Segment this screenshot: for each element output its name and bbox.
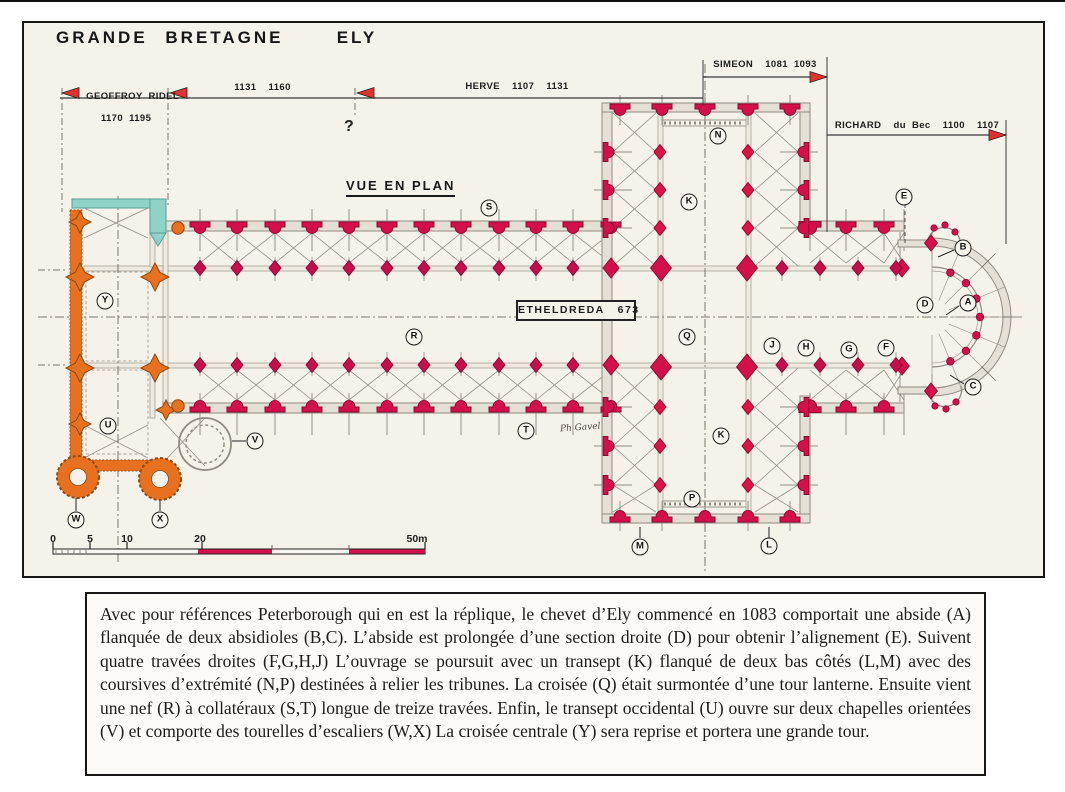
plan-marker-L: L [761,538,778,555]
scale-label-10: 10 [121,533,133,545]
plan-marker-J: J [764,338,781,355]
scale-label-5: 5 [87,533,93,545]
timeline-bishop-dates: 1170 1195 [101,113,151,124]
plan-marker-S: S [481,200,498,217]
plan-marker-E: E [896,189,913,206]
timeline-label-geoffroy: GEOFFROY RIDEL 1170 1195 [62,80,166,135]
scan-page: GRANDE BRETAGNE ELY GEOFFROY RIDEL 1170 … [0,0,1065,792]
plan-marker-M: M [632,539,649,556]
plan-marker-K: K [681,194,698,211]
plan-marker-Q: Q [679,329,696,346]
question-mark: ? [344,118,354,136]
plan-marker-A: A [960,295,977,312]
plan-marker-P: P [684,491,701,508]
plan-marker-V: V [247,433,264,450]
plan-view-label: VUE EN PLAN [346,178,455,197]
plan-marker-K: K [713,428,730,445]
timeline-label-1131-1160: 1131 1160 [170,82,355,93]
plan-marker-R: R [406,329,423,346]
plan-marker-B: B [955,240,972,257]
caption-text: Avec pour références Peterborough qui en… [100,603,971,743]
timeline-bishop-name: GEOFFROY RIDEL [86,91,179,102]
plan-marker-G: G [841,342,858,359]
scale-label-50m: 50m [406,533,427,545]
plan-marker-N: N [710,128,727,145]
plan-marker-C: C [965,379,982,396]
plan-marker-D: D [917,297,934,314]
founder-label-box: ETHELDREDA 673 [516,300,636,321]
plan-title: GRANDE BRETAGNE ELY [56,28,377,48]
timeline-label-herve: HERVE 1107 1131 [357,81,677,92]
plan-marker-H: H [798,340,815,357]
plan-marker-F: F [878,340,895,357]
plan-marker-X: X [152,512,169,529]
scale-label-0: 0 [50,533,56,545]
plan-marker-T: T [518,423,535,440]
scale-label-20: 20 [194,533,206,545]
plan-marker-Y: Y [97,293,114,310]
plan-marker-W: W [68,512,85,529]
timeline-label-richard: RICHARD du Bec 1100 1107 [830,120,1004,131]
timeline-label-simeon: SIMEON 1081 1093 [705,59,825,70]
plan-marker-U: U [100,418,117,435]
caption-panel: Avec pour références Peterborough qui en… [85,592,986,776]
